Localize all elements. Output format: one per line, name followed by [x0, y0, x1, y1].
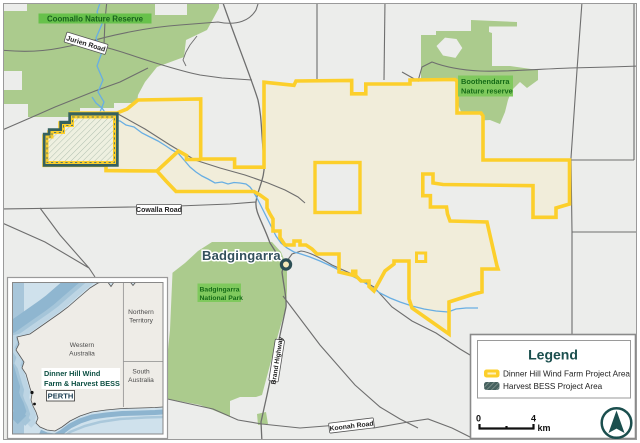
- svg-text:Badgingarra: Badgingarra: [202, 248, 281, 263]
- svg-text:Northern: Northern: [128, 309, 154, 316]
- svg-text:Territory: Territory: [129, 318, 154, 325]
- svg-text:Cowalla Road: Cowalla Road: [136, 207, 182, 214]
- svg-text:Farm & Harvest BESS: Farm & Harvest BESS: [44, 379, 120, 388]
- svg-text:Boothendarra: Boothendarra: [461, 77, 510, 86]
- svg-text:Harvest BESS Project Area: Harvest BESS Project Area: [503, 382, 603, 391]
- svg-text:Dinner Hill Wind Farm Project: Dinner Hill Wind Farm Project Area: [503, 370, 630, 379]
- svg-text:Australia: Australia: [128, 377, 154, 384]
- svg-text:Australia: Australia: [69, 351, 95, 358]
- svg-text:Legend: Legend: [528, 347, 578, 363]
- svg-text:Nature reserve: Nature reserve: [461, 87, 513, 96]
- svg-text:PERTH: PERTH: [48, 392, 74, 401]
- svg-text:0: 0: [476, 414, 481, 424]
- svg-text:4: 4: [531, 414, 536, 424]
- svg-text:Western: Western: [70, 342, 95, 349]
- svg-text:National Park: National Park: [200, 295, 244, 302]
- svg-text:Coomallo Nature Reserve: Coomallo Nature Reserve: [47, 15, 144, 24]
- svg-text:Badgingarra: Badgingarra: [200, 286, 240, 293]
- svg-text:South: South: [132, 369, 150, 376]
- svg-text:Dinner Hill Wind: Dinner Hill Wind: [44, 369, 100, 378]
- svg-text:km: km: [538, 423, 551, 433]
